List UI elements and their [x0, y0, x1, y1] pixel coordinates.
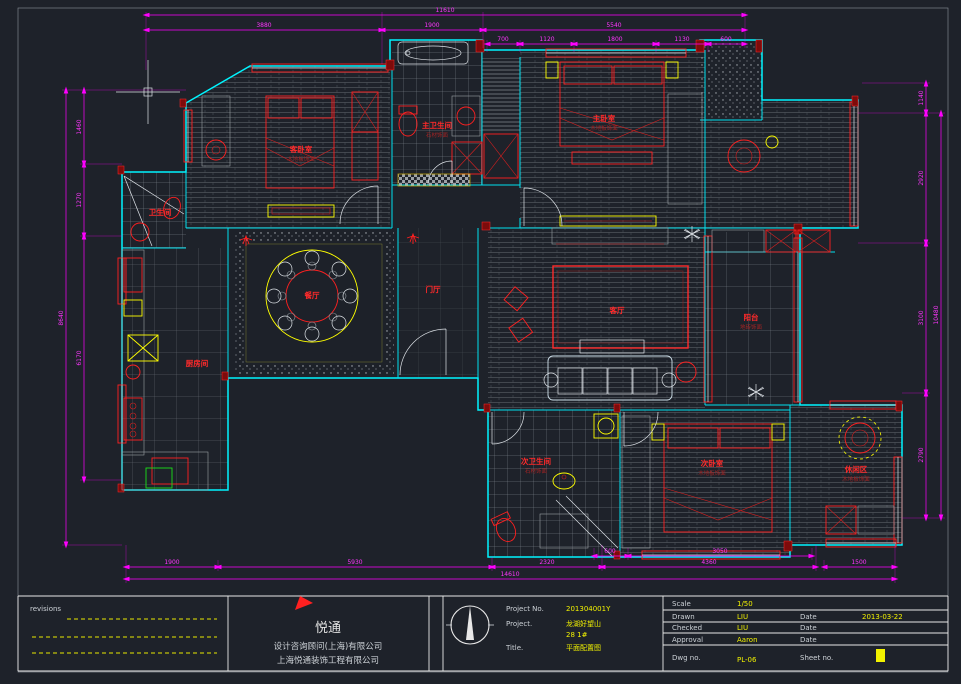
- dim-label: 1270: [76, 192, 83, 207]
- dim-label: 5540: [606, 22, 621, 29]
- dwg-no-label: Dwg no.: [672, 654, 701, 662]
- company-line1: 设计咨询顾问(上海)有限公司: [274, 641, 383, 652]
- dim-label: 6170: [76, 350, 83, 365]
- room-label: 客厅: [609, 305, 625, 315]
- date-label: Date: [800, 636, 817, 644]
- room-label: 休闲区: [844, 464, 868, 474]
- dim-label: 8640: [58, 310, 65, 325]
- room-finish-label: 石材饰面: [525, 467, 548, 475]
- dim-label: 1140: [918, 90, 925, 105]
- scale-label: Scale: [672, 600, 691, 608]
- company-name: 悦通: [315, 621, 341, 636]
- dim-label: 14610: [500, 571, 519, 578]
- drawn-value: LIU: [737, 613, 748, 621]
- dim-label: 5930: [347, 559, 362, 566]
- room-label: 客卧室: [289, 144, 313, 154]
- date-label: Date: [800, 624, 817, 632]
- dim-label: 1460: [76, 119, 83, 134]
- room-finish-label: 石材饰面: [426, 131, 449, 139]
- dim-label: 2790: [918, 447, 925, 462]
- dim-label: 3880: [256, 22, 271, 29]
- checked-label: Checked: [672, 624, 702, 632]
- threshold: [398, 174, 470, 186]
- dim-label: 1900: [164, 559, 179, 566]
- dim-label: 1800: [607, 36, 622, 43]
- dwg-no-value: PL-06: [737, 656, 757, 664]
- room-label: 次卧室: [701, 458, 724, 468]
- approval-value: Aaron: [737, 636, 758, 644]
- room-finish-label: 木地板饰面: [590, 124, 618, 132]
- room-label: 阳台: [744, 312, 759, 322]
- sheet-no-label: Sheet no.: [800, 654, 833, 662]
- room-label: 厨房间: [186, 358, 209, 368]
- dim-label: 1120: [539, 36, 554, 43]
- title-value: 平面配置图: [566, 644, 601, 652]
- revisions-label: revisions: [30, 605, 61, 613]
- drawn-label: Drawn: [672, 613, 695, 621]
- approval-label: Approval: [672, 636, 703, 644]
- project-label: Project.: [506, 620, 532, 628]
- room-label: 主卫生间: [422, 120, 452, 130]
- room-finish-label: 木地板饰面: [287, 155, 315, 163]
- room-finish-label: 木地板饰面: [698, 469, 726, 477]
- room-label: 卫生间: [149, 207, 172, 217]
- dim-label: 600: [604, 548, 616, 555]
- drawn-date-value: 2013-03-22: [862, 613, 903, 621]
- room-label: 餐厅: [304, 290, 320, 300]
- room-label: 次卫生间: [521, 456, 551, 466]
- room-label: 主卧室: [593, 113, 616, 123]
- dim-label: 10480: [933, 305, 940, 324]
- scale-value: 1/50: [737, 600, 753, 608]
- date-label: Date: [800, 613, 817, 621]
- project-value-line2: 28 1#: [566, 631, 588, 639]
- room-label: 门厅: [426, 284, 441, 294]
- dim-label: 1900: [424, 22, 439, 29]
- sheet-no-marker: [876, 649, 885, 662]
- dim-label: 3050: [712, 548, 727, 555]
- dim-label: 2320: [539, 559, 554, 566]
- dim-label: 4360: [701, 559, 716, 566]
- checked-value: LIU: [737, 624, 748, 632]
- cad-canvas[interactable]: 11610 3880 1900 5540 700 1120 1800 1130 …: [0, 0, 961, 684]
- floor-plan-drawing: 11610 3880 1900 5540 700 1120 1800 1130 …: [0, 0, 961, 684]
- dim-label: 1130: [674, 36, 689, 43]
- company-line2: 上海悦通装饰工程有限公司: [277, 655, 379, 666]
- dim-label: 3100: [918, 310, 925, 325]
- title-label: Title.: [505, 644, 523, 652]
- dim-label: 1500: [851, 559, 866, 566]
- room-finish-label: 木地板饰面: [842, 475, 870, 483]
- room-finish-label: 地砖饰面: [740, 323, 763, 331]
- project-no-label: Project No.: [506, 605, 544, 613]
- project-no-value: 201304001Y: [566, 605, 611, 613]
- dining-border-band: [228, 228, 398, 378]
- dim-label: 11610: [435, 7, 454, 14]
- dim-label: 600: [720, 36, 732, 43]
- dim-label: 2920: [918, 170, 925, 185]
- project-value-line1: 龙湖好望山: [566, 619, 601, 628]
- dim-label: 700: [497, 36, 509, 43]
